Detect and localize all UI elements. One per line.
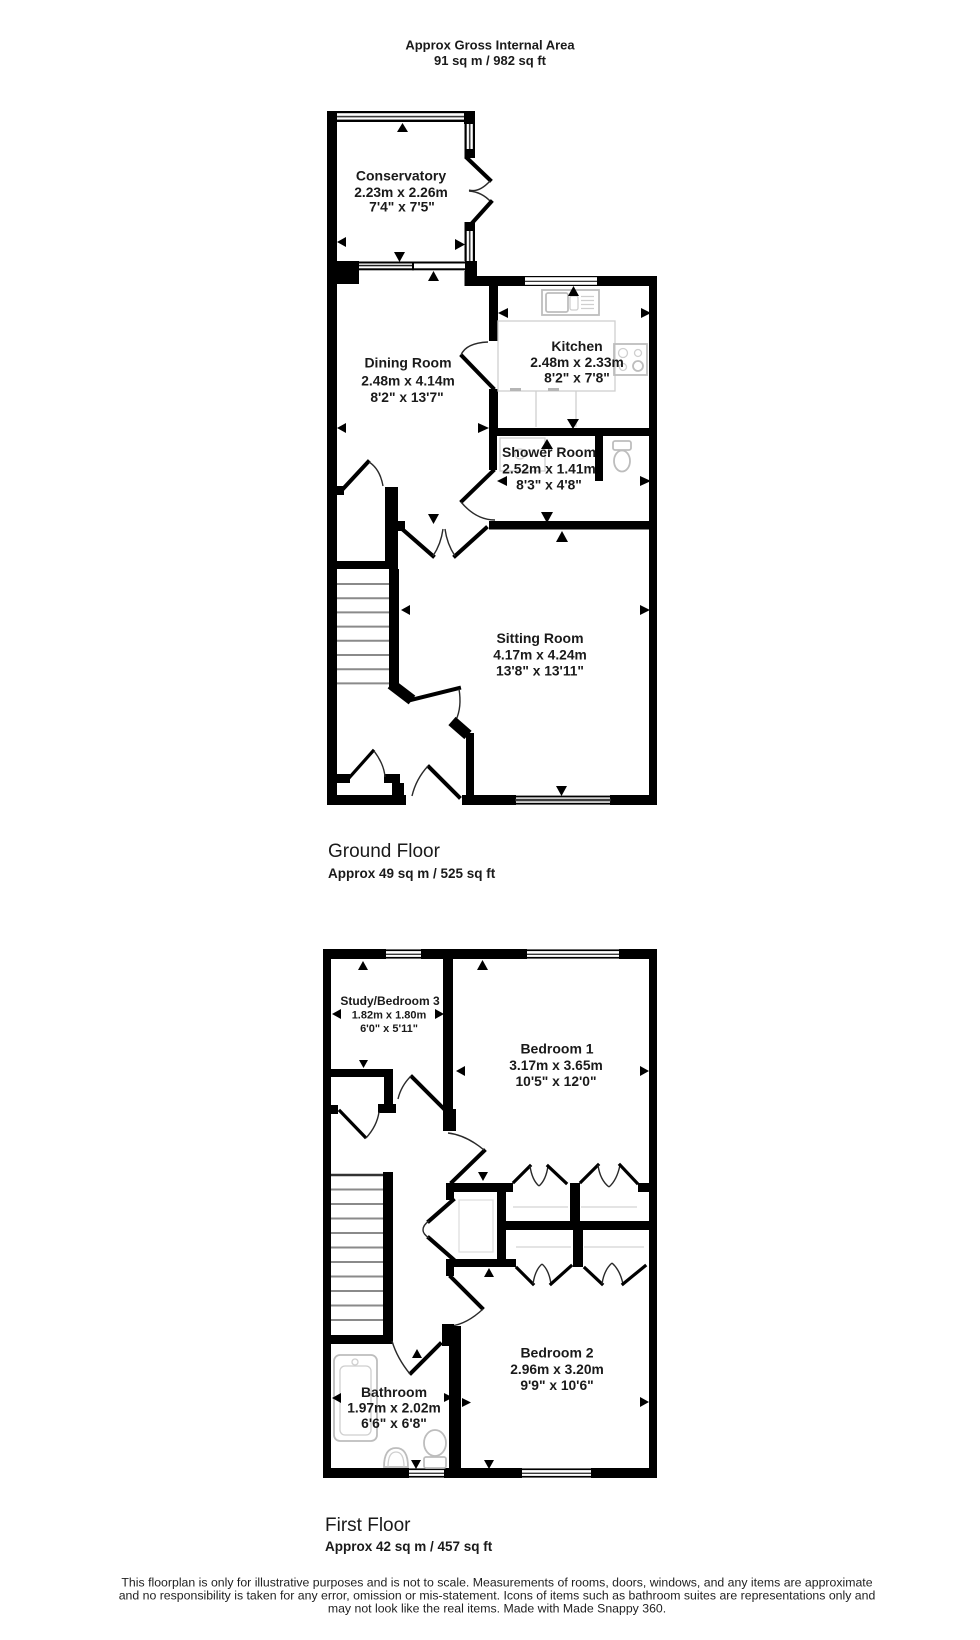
svg-text:Study/Bedroom 3: Study/Bedroom 3 [340, 994, 440, 1008]
svg-text:7'4" x 7'5": 7'4" x 7'5" [369, 200, 435, 215]
svg-text:Conservatory: Conservatory [356, 168, 446, 184]
svg-text:91 sq m / 982 sq ft: 91 sq m / 982 sq ft [434, 53, 547, 68]
svg-text:3.17m x 3.65m: 3.17m x 3.65m [509, 1058, 603, 1073]
svg-text:Dining Room: Dining Room [364, 355, 451, 371]
svg-text:This floorplan is only for ill: This floorplan is only for illustrative … [121, 1576, 872, 1590]
svg-text:2.23m x 2.26m: 2.23m x 2.26m [354, 185, 448, 200]
svg-text:Bedroom 1: Bedroom 1 [520, 1041, 593, 1057]
svg-text:1.97m x 2.02m: 1.97m x 2.02m [347, 1401, 441, 1416]
svg-text:2.52m x 1.41m: 2.52m x 1.41m [502, 462, 596, 477]
svg-text:Ground Floor: Ground Floor [328, 841, 441, 862]
svg-text:6'0" x 5'11": 6'0" x 5'11" [360, 1023, 418, 1035]
svg-text:Bathroom: Bathroom [361, 1384, 427, 1400]
svg-text:6'6" x 6'8": 6'6" x 6'8" [361, 1416, 427, 1431]
svg-text:13'8" x 13'11": 13'8" x 13'11" [496, 664, 584, 679]
svg-text:8'2" x 7'8": 8'2" x 7'8" [544, 371, 610, 386]
svg-text:10'5" x 12'0": 10'5" x 12'0" [515, 1074, 596, 1089]
svg-text:9'9" x 10'6": 9'9" x 10'6" [520, 1378, 593, 1393]
svg-text:Approx Gross Internal Area: Approx Gross Internal Area [405, 38, 575, 53]
svg-text:8'2" x 13'7": 8'2" x 13'7" [370, 390, 443, 405]
svg-text:8'3" x 4'8": 8'3" x 4'8" [516, 478, 582, 493]
svg-text:Bedroom 2: Bedroom 2 [520, 1345, 593, 1361]
svg-text:may not look like the real ite: may not look like the real items. Made w… [328, 1602, 666, 1616]
svg-text:Approx 42 sq m / 457 sq ft: Approx 42 sq m / 457 sq ft [325, 1539, 493, 1554]
svg-text:and no responsibility is taken: and no responsibility is taken for any e… [119, 1589, 876, 1603]
svg-text:2.48m x 4.14m: 2.48m x 4.14m [361, 374, 455, 389]
svg-text:Kitchen: Kitchen [551, 338, 602, 354]
svg-text:Sitting Room: Sitting Room [496, 630, 583, 646]
svg-text:Approx 49 sq m / 525 sq ft: Approx 49 sq m / 525 sq ft [328, 866, 496, 881]
svg-text:First Floor: First Floor [325, 1515, 411, 1536]
svg-text:2.48m x 2.33m: 2.48m x 2.33m [530, 355, 624, 370]
svg-text:4.17m x 4.24m: 4.17m x 4.24m [493, 648, 587, 663]
svg-text:2.96m x 3.20m: 2.96m x 3.20m [510, 1362, 604, 1377]
svg-text:1.82m x 1.80m: 1.82m x 1.80m [352, 1010, 427, 1022]
